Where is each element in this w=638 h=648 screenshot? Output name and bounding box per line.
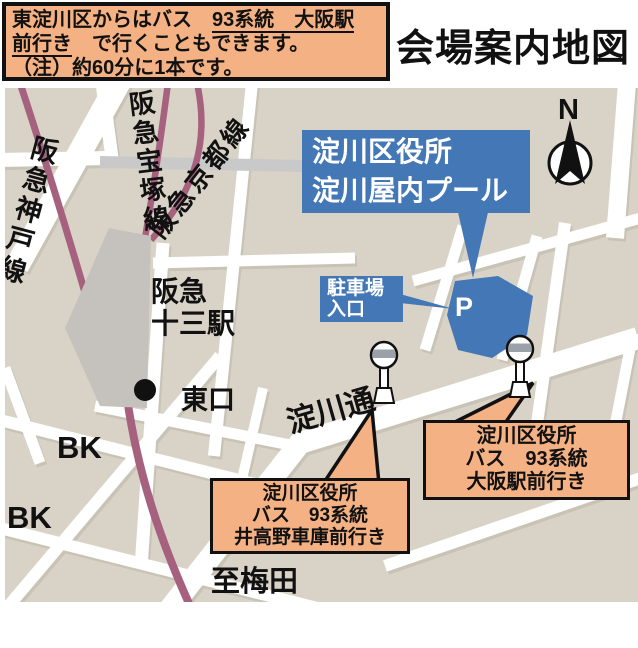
venue-label-line2: 淀川屋内プール	[312, 171, 520, 210]
north-arrow-icon	[549, 120, 591, 184]
station-label-line1: 阪急	[151, 276, 235, 308]
bus-info-text-2: で行くこともできます。	[72, 33, 309, 55]
parking-label-box: 駐車場 入口	[320, 276, 403, 322]
parking-mark: P	[455, 292, 473, 323]
bus-route-underlined-2: 前行き	[12, 33, 72, 57]
bus-info-line-1: 東淀川区からはバス 93系統 大阪駅	[12, 8, 380, 32]
parking-label-line1: 駐車場	[327, 278, 396, 299]
east-exit-label: 東口	[181, 378, 235, 417]
bus-route-underlined: 93系統 大阪駅	[212, 9, 354, 33]
venue-label-box: 淀川区役所 淀川屋内プール	[302, 130, 530, 213]
bus-info-line-2: 前行き で行くこともできます。	[12, 32, 380, 56]
bus-info-text: 東淀川区からはバス	[12, 9, 212, 31]
north-label: N	[558, 94, 579, 127]
station-label-line2: 十三駅	[151, 308, 235, 340]
bank-label-2: BK	[7, 500, 52, 536]
bank-label-1: BK	[57, 430, 102, 466]
callout-itakano-bound: 淀川区役所 バス 93系統 井高野車庫前行き	[210, 478, 410, 554]
bus-info-line-3: （注）約60分に1本です。	[12, 56, 380, 80]
east-exit-dot	[134, 379, 156, 401]
callout-osaka-bound: 淀川区役所 バス 93系統 大阪駅前行き	[423, 420, 630, 500]
callout-itakano-line1: 淀川区役所	[213, 483, 407, 505]
bus-info-note: （注）約60分に1本です。	[12, 57, 243, 79]
bus-info-box: 東淀川区からはバス 93系統 大阪駅 前行き で行くこともできます。 （注）約6…	[2, 2, 390, 81]
page-title: 会場案内地図	[396, 17, 630, 72]
callout-osaka-line3: 大阪駅前行き	[426, 471, 627, 494]
callout-itakano-line3: 井高野車庫前行き	[213, 527, 407, 549]
to-umeda-label: 至梅田	[211, 558, 298, 600]
bus-stop-icon-itakano	[371, 342, 397, 403]
callout-osaka-line2: バス 93系統	[426, 448, 627, 471]
callout-itakano-line2: バス 93系統	[213, 505, 407, 527]
parking-label-line2: 入口	[327, 299, 396, 320]
venue-access-map-page: 東淀川区からはバス 93系統 大阪駅 前行き で行くこともできます。 （注）約6…	[0, 0, 638, 648]
venue-label-line1: 淀川区役所	[312, 132, 520, 171]
map-canvas: 阪急神戸線 阪急宝塚線 阪急京都線 阪急 十三駅 東口 BK BK 淀川通 至梅…	[5, 88, 638, 602]
station-label: 阪急 十三駅	[151, 276, 235, 340]
callout-osaka-line1: 淀川区役所	[426, 425, 627, 448]
